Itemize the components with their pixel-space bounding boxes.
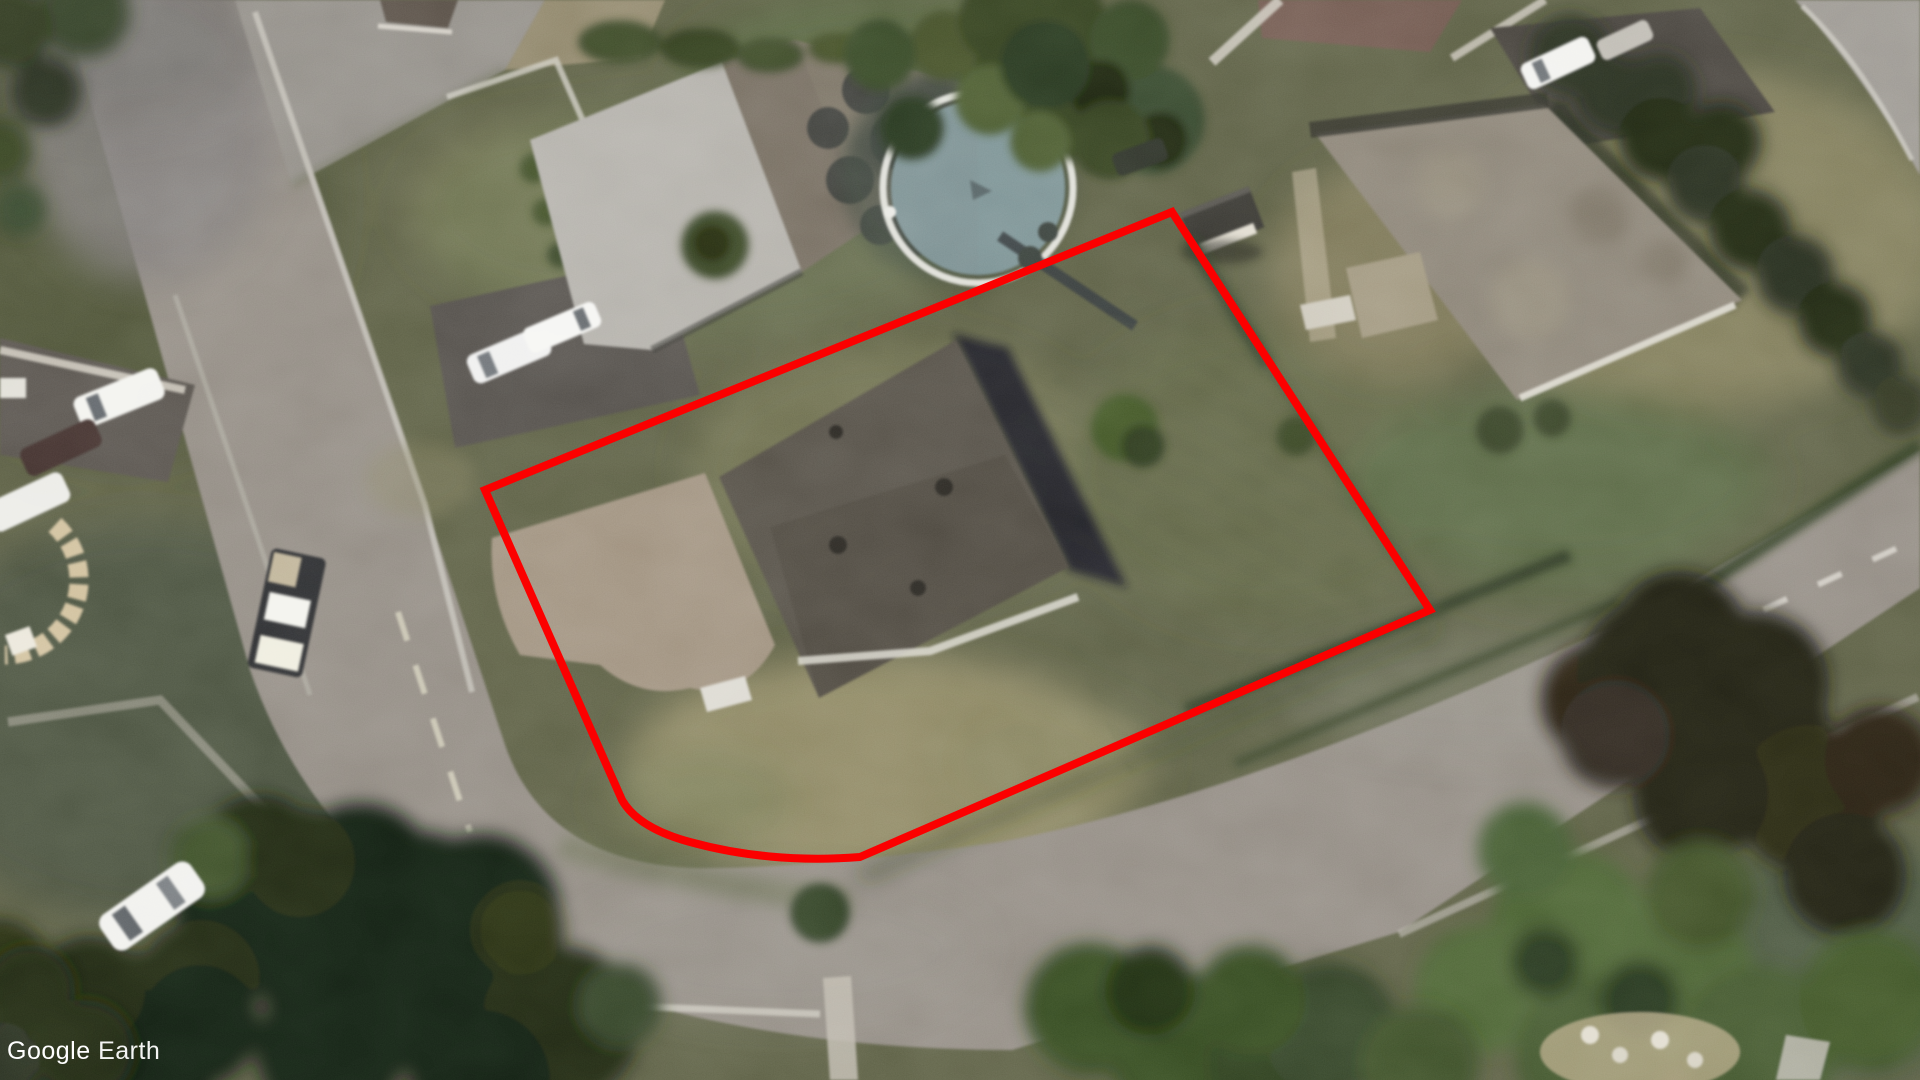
svg-text:Google Earth: Google Earth: [7, 1037, 160, 1065]
